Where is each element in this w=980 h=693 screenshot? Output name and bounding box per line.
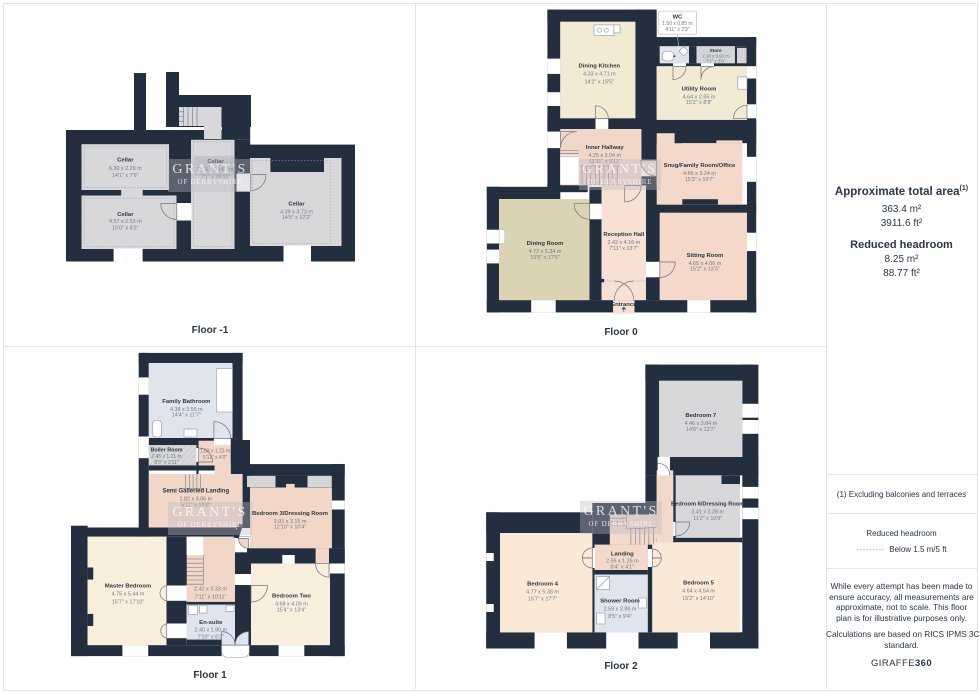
svg-text:7'11" x 13'7": 7'11" x 13'7" (609, 246, 638, 252)
svg-text:Landing: Landing (611, 552, 634, 558)
svg-text:Utility Room: Utility Room (682, 87, 717, 93)
svg-text:En-suite: En-suite (199, 620, 223, 626)
svg-text:7'11" x 10'11": 7'11" x 10'11" (195, 595, 227, 601)
svg-text:Sitting Room: Sitting Room (687, 253, 724, 259)
svg-text:Dining Kitchen: Dining Kitchen (579, 63, 621, 69)
svg-text:2.45 x 1.21 m: 2.45 x 1.21 m (151, 454, 181, 460)
svg-text:15'4" x 13'4": 15'4" x 13'4" (277, 608, 307, 614)
svg-text:Cellar: Cellar (117, 158, 134, 164)
svg-text:WC: WC (673, 14, 683, 20)
svg-text:Inner Hallway: Inner Hallway (586, 145, 625, 151)
svg-text:1.83 x 1.23 m: 1.83 x 1.23 m (200, 449, 230, 455)
svg-text:5'11" x 4'0": 5'11" x 4'0" (203, 455, 227, 461)
svg-text:Bedroom 6/Dressing Room: Bedroom 6/Dressing Room (671, 502, 744, 508)
svg-text:Dining Room: Dining Room (527, 241, 564, 247)
svg-text:15'2" x 14'10": 15'2" x 14'10" (682, 596, 715, 602)
svg-text:Bedroom 4: Bedroom 4 (527, 582, 558, 588)
svg-text:2.40 x 1.90 m: 2.40 x 1.90 m (194, 628, 227, 634)
svg-text:Cellar: Cellar (117, 212, 134, 218)
svg-text:Bedroom 7: Bedroom 7 (685, 413, 716, 419)
svg-text:15'7" x 17'7": 15'7" x 17'7" (528, 597, 558, 603)
svg-text:14'2" x 15'5": 14'2" x 15'5" (585, 79, 615, 85)
svg-text:7'10" x 6'2": 7'10" x 6'2" (198, 635, 225, 641)
svg-text:2.42 x 3.33 m: 2.42 x 3.33 m (194, 587, 227, 593)
svg-text:Master Bedroom: Master Bedroom (105, 584, 151, 590)
svg-text:Entrance: Entrance (611, 302, 637, 308)
svg-text:Bedroom 3/Dressing Room: Bedroom 3/Dressing Room (252, 511, 328, 517)
svg-text:Reception Hall: Reception Hall (603, 232, 644, 238)
svg-text:7'1" x 3'0": 7'1" x 3'0" (706, 59, 726, 64)
svg-text:15'2" x 13'3": 15'2" x 13'3" (690, 266, 720, 272)
svg-text:12'10" x 10'4": 12'10" x 10'4" (274, 525, 307, 531)
svg-text:Cellar: Cellar (288, 202, 305, 208)
svg-text:8'0" x 3'11": 8'0" x 3'11" (154, 460, 178, 466)
svg-text:Bedroom 5: Bedroom 5 (683, 581, 714, 587)
svg-text:14'8" x 12'7": 14'8" x 12'7" (686, 427, 716, 433)
svg-text:2.59 x 2.86 m: 2.59 x 2.86 m (604, 607, 637, 613)
svg-text:14'5" x 12'2": 14'5" x 12'2" (282, 215, 312, 221)
svg-text:8'5" x 9'4": 8'5" x 9'4" (608, 614, 632, 620)
svg-text:4'11" x 2'9": 4'11" x 2'9" (665, 27, 689, 33)
svg-text:3.41 x 3.28 m: 3.41 x 3.28 m (691, 510, 724, 516)
svg-text:4.64 x 4.54 m: 4.64 x 4.54 m (682, 589, 715, 595)
svg-text:15'7" x 17'10": 15'7" x 17'10" (112, 600, 145, 606)
svg-text:15'5" x 17'6": 15'5" x 17'6" (530, 255, 560, 261)
svg-text:Boiler Room: Boiler Room (150, 448, 182, 454)
svg-text:4.75 x 5.44 m: 4.75 x 5.44 m (112, 592, 145, 598)
svg-text:15'2" x 8'8": 15'2" x 8'8" (686, 100, 713, 106)
svg-text:15'3" x 10'7": 15'3" x 10'7" (685, 177, 715, 183)
svg-text:14'4" x 11'7": 14'4" x 11'7" (172, 413, 201, 419)
svg-text:8'4" x 4'1": 8'4" x 4'1" (611, 565, 635, 571)
svg-text:6.30 x 2.29 m: 6.30 x 2.29 m (109, 166, 142, 172)
svg-text:4.33 x 4.71 m: 4.33 x 4.71 m (583, 71, 616, 77)
svg-text:4.57 x 2.53 m: 4.57 x 2.53 m (109, 219, 142, 225)
svg-text:Family Bathroom: Family Bathroom (162, 399, 210, 405)
svg-text:Semi Galleried Landing: Semi Galleried Landing (162, 489, 229, 495)
svg-text:4.77 x 5.38 m: 4.77 x 5.38 m (526, 590, 559, 596)
svg-text:11'2" x 10'9": 11'2" x 10'9" (693, 516, 722, 522)
svg-text:Bedroom Two: Bedroom Two (272, 594, 311, 600)
svg-text:Snug/Family Room/Office: Snug/Family Room/Office (664, 163, 736, 169)
svg-text:14'1" x 7'6": 14'1" x 7'6" (112, 173, 139, 179)
svg-text:Shower Room: Shower Room (600, 599, 640, 605)
svg-text:15'0" x 8'3": 15'0" x 8'3" (112, 226, 139, 232)
